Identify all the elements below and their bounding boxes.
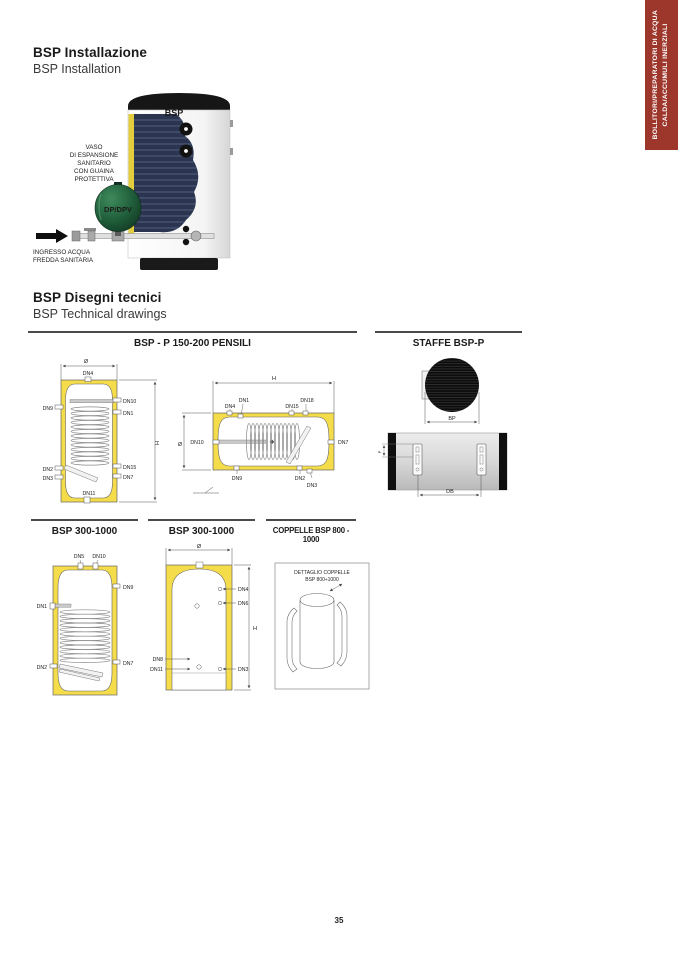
valve-handle [84, 228, 96, 231]
tank-fitting [230, 148, 233, 155]
d2-dn10-tube [218, 440, 266, 443]
pipe-union [191, 231, 201, 241]
d5-label-dn4: DN4 [238, 587, 248, 593]
d1-label-dn4: DN4 [83, 371, 93, 377]
d5-dim-height: H [253, 626, 257, 632]
catalog-page: BOLLITORI/PREPARATORI DI ACQUA CALDA/ACC… [0, 0, 678, 959]
expansion-note-line: DI ESPANSIONE [70, 152, 119, 159]
technical-title-en: BSP Technical drawings [33, 307, 167, 321]
d2-label-dn4: DN4 [225, 404, 235, 410]
tank-port-cap-center [184, 127, 188, 131]
coppelle-title-1: DETTAGLIO COPPELLE [294, 570, 350, 576]
d5-port-mark [218, 667, 222, 671]
tank-small-port [183, 226, 189, 232]
expansion-note-line: CON GUAINA [74, 168, 115, 175]
d2-label-dn10: DN10 [190, 440, 203, 446]
d2-label-dn1: DN1 [239, 398, 249, 404]
header-staffe: STAFFE BSP-P [375, 331, 522, 349]
drawing-bsp300-side: Ø H DN4 DN6 DN3 DN8 DN11 [150, 542, 262, 706]
staffe-tank-end-view [425, 358, 479, 412]
d1-label-dn15: DN15 [123, 465, 136, 471]
drawing-bspp-horizontal: H Ø [175, 370, 355, 502]
tank-fitting [230, 120, 233, 127]
d4-label-dn2: DN2 [37, 665, 47, 671]
tank-small-port [183, 239, 189, 245]
d2-dim-diameter: Ø [178, 442, 183, 448]
inlet-note-line: FREDDA SANITARIA [33, 257, 94, 264]
coppelle-title-2: BSP 800÷1000 [305, 577, 339, 583]
d1-label-dn3: DN3 [43, 476, 53, 482]
d1-top-tube [70, 400, 114, 403]
header-pensili: BSP - P 150-200 PENSILI [28, 331, 357, 349]
d2-label-dn3: DN3 [307, 483, 317, 489]
d2-label-dn2: DN2 [295, 476, 305, 482]
expansion-note-line: PROTETTIVA [74, 176, 114, 183]
drawing-staffe: BP P DB [378, 352, 524, 504]
d1-label-dn9: DN9 [43, 406, 53, 412]
d4-label-dn9: DN9 [123, 585, 133, 591]
coppelle-cylinder [300, 594, 334, 669]
drawing-bsp300-front: DN5 DN10 DN9 DN1 [30, 548, 150, 704]
flow-arrow-icon [36, 229, 68, 243]
d2-dim-height: H [272, 376, 276, 382]
category-tab-text: BOLLITORI/PREPARATORI DI ACQUA CALDA/ACC… [651, 10, 671, 139]
installation-title-en: BSP Installation [33, 62, 121, 76]
d1-label-dn10: DN10 [123, 399, 136, 405]
staffe-end-band [499, 433, 507, 490]
category-line-2: CALDA/ACCUMULI INERZIALI [662, 10, 672, 139]
inlet-note: INGRESSO ACQUA FREDDA SANITARIA [33, 249, 94, 264]
d5-label-dn11: DN11 [150, 667, 163, 673]
tank-model-label: BSP [165, 108, 184, 118]
header-coppelle: COPPELLE BSP 800 - 1000 [266, 519, 356, 544]
drawing-bspp-front: Ø H DN4 DN9 DN10 [40, 355, 170, 505]
d4-dn1-tube [53, 604, 71, 607]
d1-label-dn1: DN1 [123, 411, 133, 417]
d4-label-dn7: DN7 [123, 661, 133, 667]
d4-label-dn10: DN10 [92, 554, 105, 560]
category-line-1: BOLLITORI/PREPARATORI DI ACQUA [651, 10, 661, 139]
tank-photo: BSP [128, 93, 233, 270]
expansion-note-line: VASO [85, 144, 102, 151]
installation-title-it: BSP Installazione [33, 45, 147, 60]
d5-label-dn8: DN8 [153, 657, 163, 663]
d2-label-dn7: DN7 [338, 440, 348, 446]
pipe-fitting [72, 231, 80, 241]
staffe-end-band [388, 433, 396, 490]
d2-label-dn18: DN18 [300, 398, 313, 404]
category-tab: BOLLITORI/PREPARATORI DI ACQUA CALDA/ACC… [645, 0, 678, 150]
tank-base [140, 258, 218, 270]
d2-label-dn9: DN9 [232, 476, 242, 482]
d4-top-labels: DN5 DN10 [74, 554, 106, 560]
d1-dim-height: H [155, 441, 161, 445]
d5-vessel-shell [172, 569, 226, 690]
d5-label-dn6: DN6 [238, 601, 248, 607]
d2-label-dn15: DN15 [285, 404, 298, 410]
inlet-note-line: INGRESSO ACQUA [33, 249, 91, 256]
d4-label-dn5: DN5 [74, 554, 84, 560]
d1-label-dn11: DN11 [83, 491, 96, 497]
header-bsp300-side: BSP 300-1000 [148, 519, 255, 537]
valve-body [88, 231, 95, 241]
d5-port-mark [218, 587, 222, 591]
d1-label-dn7: DN7 [123, 475, 133, 481]
staffe-dim-p: P [378, 450, 382, 453]
header-bsp300-front: BSP 300-1000 [31, 519, 138, 537]
tank-port-cap-center [184, 149, 188, 153]
d5-port-mark [218, 601, 222, 605]
installation-figure: BSP DP/DPV VASO [28, 84, 268, 279]
page-number: 35 [0, 916, 678, 925]
d5-label-dn3: DN3 [238, 667, 248, 673]
vessel-label: DP/DPV [104, 205, 132, 214]
d4-label-dn1: DN1 [37, 604, 47, 610]
expansion-note: VASO DI ESPANSIONE SANITARIO CON GUAINA … [70, 144, 119, 183]
drawing-coppelle-detail: DETTAGLIO COPPELLE BSP 800÷1000 [272, 560, 372, 692]
staffe-bracket-right [477, 444, 486, 475]
staffe-dim-bp: BP [448, 416, 456, 422]
technical-title-it: BSP Disegni tecnici [33, 290, 161, 305]
d5-top-port [196, 562, 203, 568]
expansion-note-line: SANITARIO [77, 160, 111, 167]
d1-dim-diameter: Ø [84, 359, 89, 365]
d1-label-dn2: DN2 [43, 467, 53, 473]
staffe-bracket-left [413, 444, 422, 475]
d5-dim-diameter: Ø [197, 544, 202, 550]
staffe-dim-db: DB [446, 489, 454, 495]
staffe-tank-side-view [388, 433, 507, 490]
